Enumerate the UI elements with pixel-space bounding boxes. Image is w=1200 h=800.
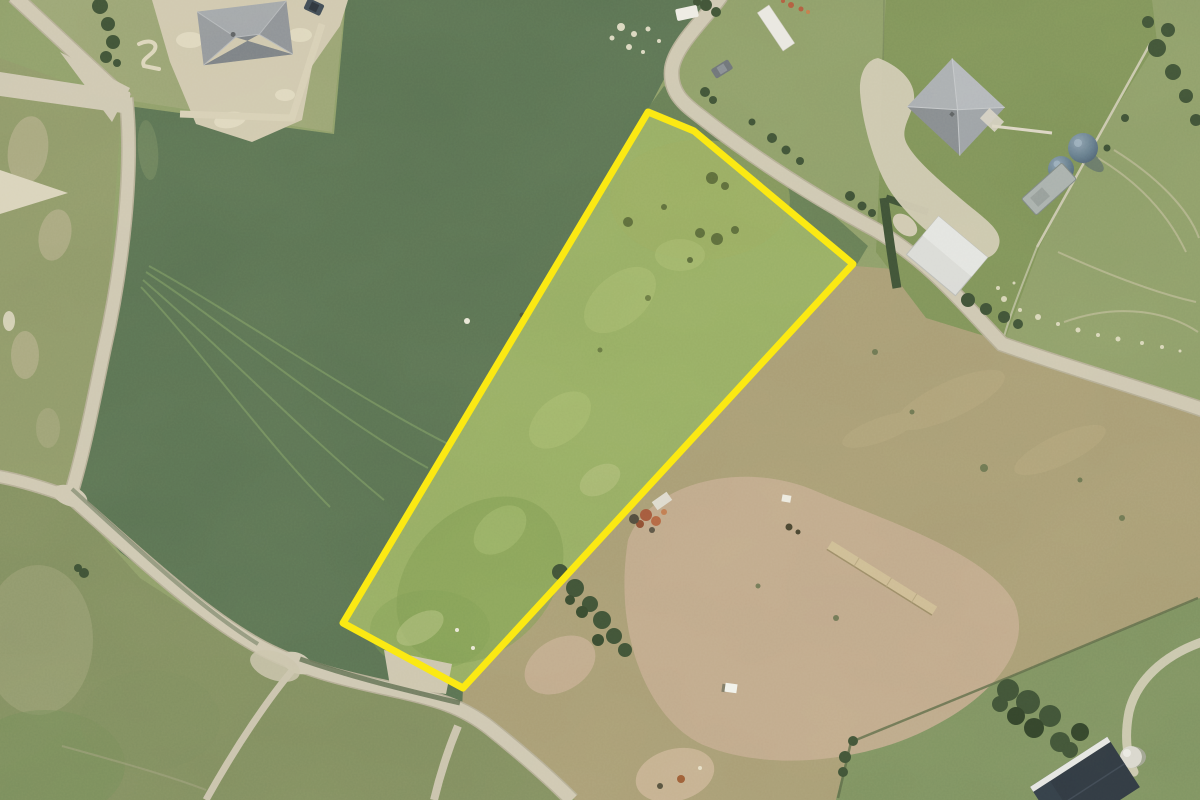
texture-fine bbox=[0, 0, 1200, 800]
map-canvas[interactable] bbox=[0, 0, 1200, 800]
aerial-map[interactable] bbox=[0, 0, 1200, 800]
